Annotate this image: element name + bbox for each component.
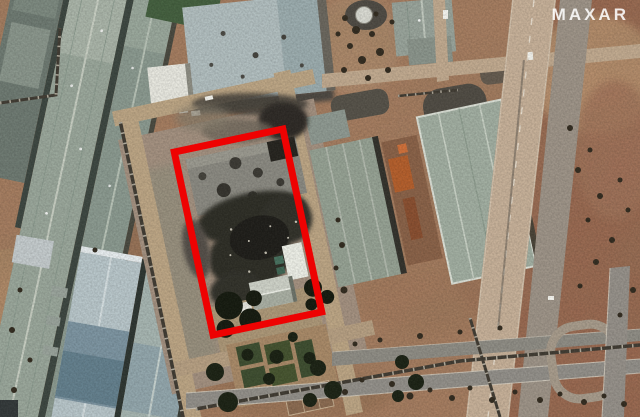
satellite-image: MAXAR	[0, 0, 640, 417]
maxar-watermark: MAXAR	[552, 5, 629, 25]
grain-light	[0, 0, 640, 417]
satellite-scene	[0, 0, 640, 417]
